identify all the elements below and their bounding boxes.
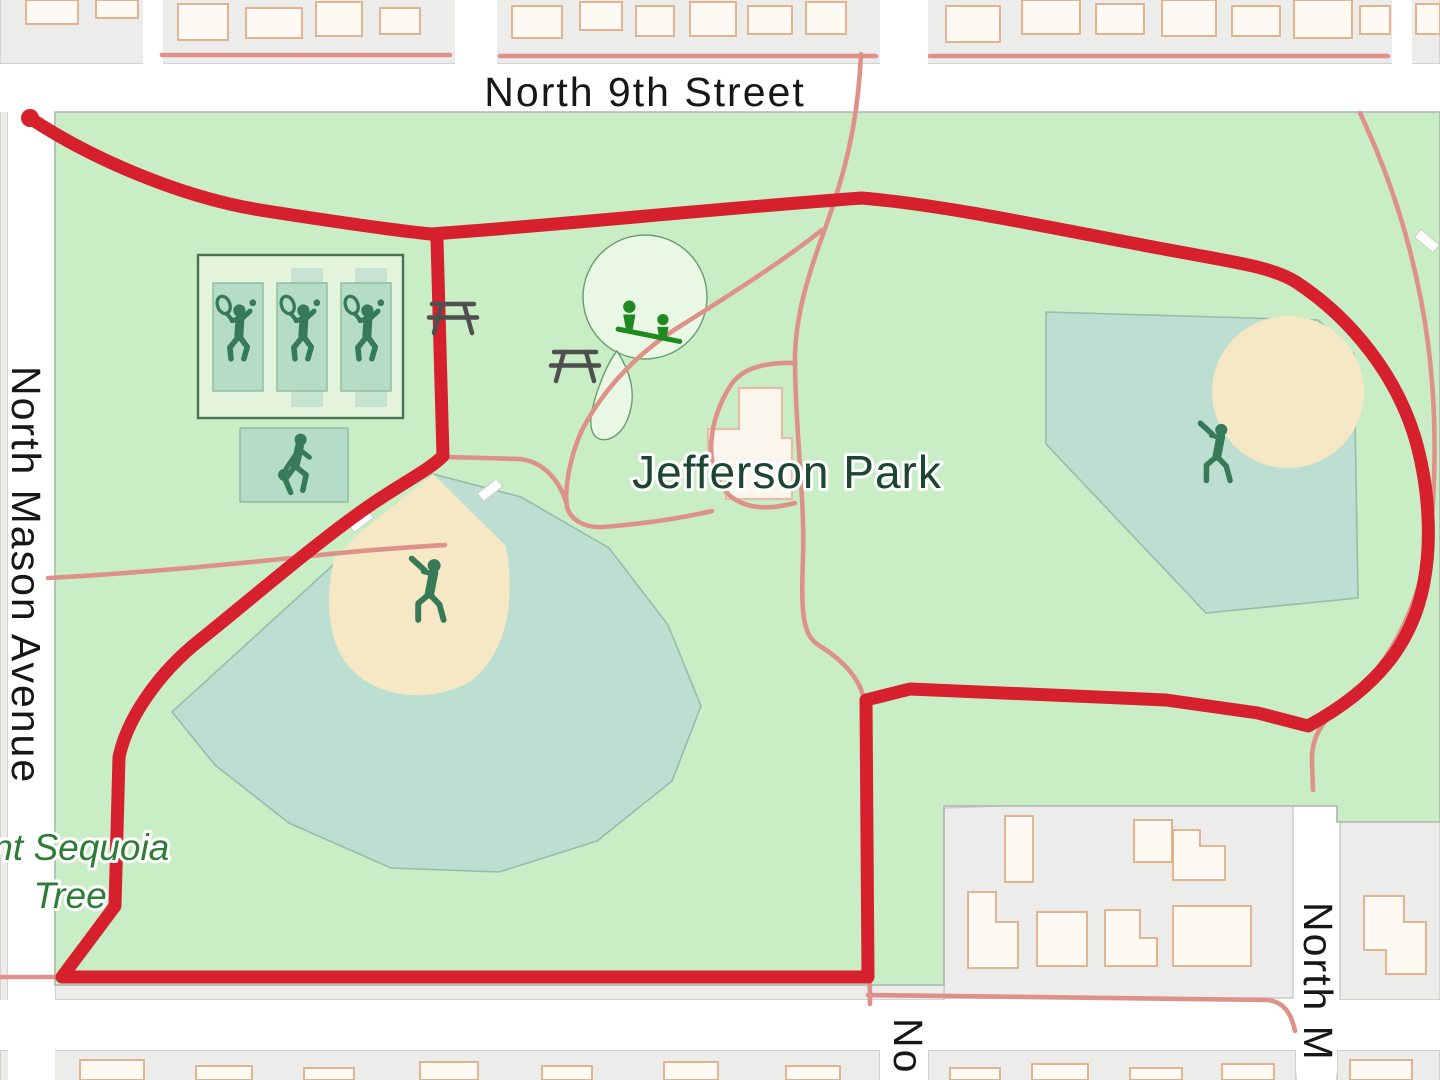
park-name-label: Jefferson Park	[632, 446, 942, 498]
route-start-dot-icon	[21, 109, 39, 127]
poi-label-sequoia-line2: Tree	[33, 875, 106, 916]
poi-label-sequoia-line1: Giant Sequoia	[0, 827, 169, 868]
street-bottom	[0, 1000, 1440, 1050]
playground-area	[583, 235, 707, 359]
street-label-north-mason: North Mason Avenue	[3, 366, 49, 784]
map-canvas[interactable]: North 9th Street North Mason Avenue Nort…	[0, 0, 1440, 1080]
street-label-bottom: No	[885, 1018, 931, 1074]
map-view[interactable]: North 9th Street North Mason Avenue Nort…	[0, 0, 1440, 1080]
street-label-north-9th: North 9th Street	[484, 69, 805, 115]
street-label-right: North M	[1295, 902, 1341, 1062]
